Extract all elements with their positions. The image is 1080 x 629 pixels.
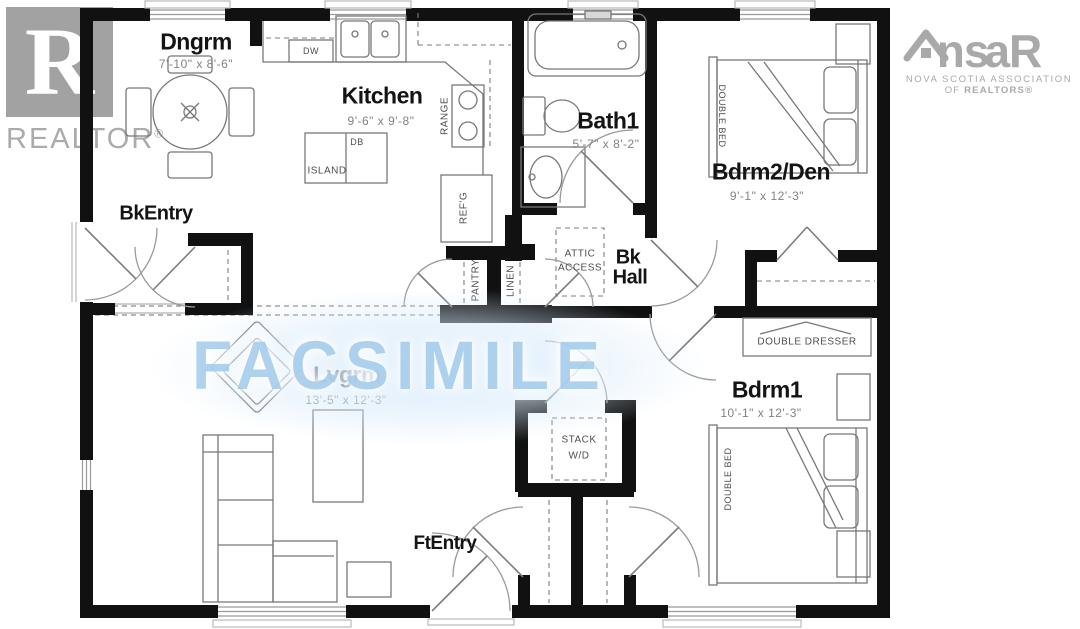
- nightstand-bdrm1-a: [837, 374, 870, 420]
- floor-plan-page: R REALTOR®: [0, 0, 1080, 629]
- pantry-door: [404, 259, 452, 307]
- label-double-dresser: DOUBLE DRESSER: [757, 337, 856, 348]
- room-label-bkentry: BkEntry: [119, 203, 192, 226]
- label-double-bed-bdrm2: DOUBLE BED: [717, 84, 727, 147]
- label-attic-line1: ATTIC: [565, 249, 596, 260]
- label-stack-line1: STACK: [561, 435, 596, 446]
- label-pantry: PANTRY: [471, 259, 482, 302]
- back-entry-door: [85, 228, 157, 300]
- walls: [80, 8, 890, 618]
- dining-table: [126, 56, 254, 178]
- bdrm1-door: [650, 314, 716, 380]
- room-label-bkhall-line2: Hall: [613, 267, 648, 290]
- nsar-tagline-line1: NOVA SCOTIA ASSOCIATION: [903, 74, 1075, 85]
- room-dims-bdrm1: 10'-1" x 12'-3": [720, 406, 801, 420]
- nightstand-bdrm2: [836, 24, 870, 64]
- label-range: RANGE: [440, 97, 451, 135]
- nsar-tagline-realtors: REALTORS®: [964, 85, 1033, 96]
- label-linen: LINEN: [506, 265, 517, 297]
- nsar-logo: ns aR NOVA SCOTIA ASSOCIATION OF REALTOR…: [903, 24, 1075, 96]
- label-fridge: REF'G: [459, 192, 470, 224]
- room-dims-kitchen: 9'-6" x 9'-8": [348, 114, 415, 128]
- bath-vanity: [521, 147, 585, 207]
- facsimile-watermark: FACSIMILE: [192, 325, 607, 404]
- room-dims-bath1: 5'-7" x 8'-2": [573, 137, 640, 151]
- label-island: ISLAND: [307, 166, 346, 177]
- bathtub: [528, 11, 646, 76]
- bkentry-closet-door: [135, 247, 195, 307]
- room-label-bath1: Bath1: [577, 108, 638, 135]
- coffee-table: [313, 410, 363, 502]
- room-dims-dngrm: 7'-10" x 8'-6": [159, 57, 233, 71]
- nsar-tagline-line2: OF REALTORS®: [903, 85, 1075, 96]
- opening-dashes: [95, 306, 440, 315]
- room-label-ftentry: FtEntry: [414, 533, 477, 555]
- label-dishwasher: DW: [303, 46, 319, 56]
- ftentry-closet-right-door: [629, 507, 699, 577]
- bdrm2-closet-doors: [777, 227, 838, 260]
- sofa-sectional: [203, 435, 337, 602]
- nsar-tagline-of: OF: [945, 85, 964, 96]
- room-label-kitchen: Kitchen: [342, 83, 423, 110]
- nightstand-bdrm1-b: [837, 531, 870, 577]
- label-double-bed-bdrm1: DOUBLE BED: [723, 447, 733, 510]
- room-label-dngrm: Dngrm: [160, 29, 232, 56]
- room-label-bdrm2: Bdrm2/Den: [712, 159, 830, 186]
- nsar-wordmark-post: aR: [984, 34, 1041, 70]
- room-label-bdrm1: Bdrm1: [732, 377, 802, 404]
- toilet: [523, 97, 580, 135]
- nsar-wordmark: ns aR: [903, 24, 1075, 70]
- bdrm2-door: [651, 240, 717, 306]
- label-stack-line2: W/D: [569, 451, 590, 462]
- label-attic-line2: ACCESS: [558, 263, 602, 274]
- label-island-db: DB: [350, 137, 364, 147]
- side-table: [347, 562, 391, 597]
- room-dims-bdrm2: 9'-1" x 12'-3": [730, 189, 804, 203]
